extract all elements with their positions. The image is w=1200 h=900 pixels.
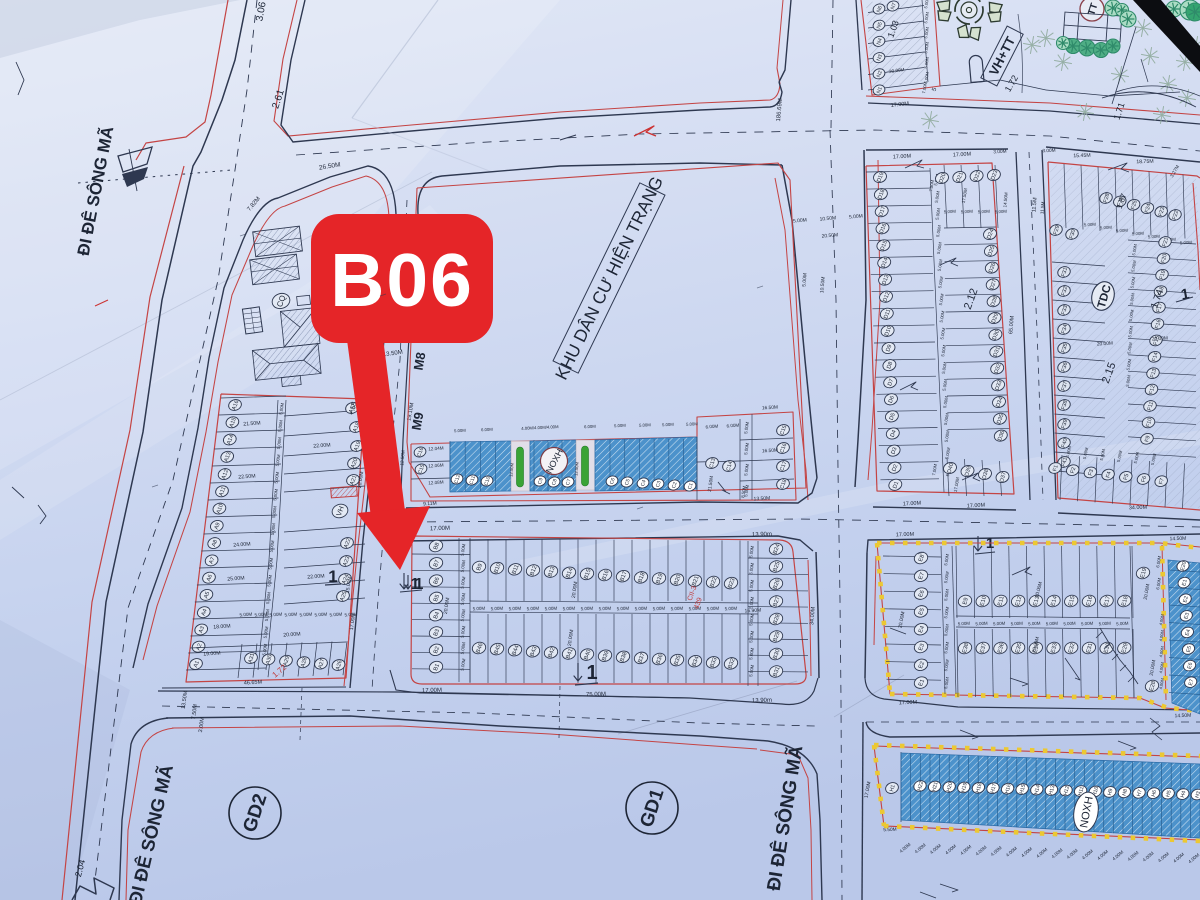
svg-text:5.00M: 5.00M: [993, 621, 1006, 627]
svg-text:34.00M: 34.00M: [1129, 505, 1148, 512]
svg-text:5.00M: 5.00M: [1028, 621, 1041, 627]
svg-text:6.00M: 6.00M: [705, 424, 718, 430]
svg-text:5.00M: 5.00M: [849, 213, 863, 220]
svg-text:5.00M: 5.00M: [1132, 231, 1145, 237]
svg-text:5.00M: 5.00M: [635, 606, 648, 612]
svg-text:5.00M: 5.00M: [793, 217, 807, 224]
svg-text:6.00M: 6.00M: [726, 423, 739, 429]
svg-text:5.00M: 5.00M: [473, 606, 486, 612]
svg-text:46.65M: 46.65M: [244, 680, 263, 687]
svg-text:5.00M: 5.00M: [801, 273, 808, 287]
svg-text:5.00M: 5.00M: [314, 612, 327, 618]
svg-text:18.75M: 18.75M: [1136, 159, 1154, 166]
svg-text:5.00M: 5.00M: [581, 606, 594, 612]
svg-text:17.00M: 17.00M: [896, 532, 915, 539]
svg-text:5.00M: 5.00M: [299, 612, 312, 618]
svg-text:5.00M: 5.00M: [1148, 234, 1161, 240]
svg-text:5.00M: 5.00M: [269, 612, 282, 618]
svg-text:22.00M: 22.00M: [313, 442, 331, 449]
svg-text:5.00M: 5.00M: [1084, 222, 1097, 228]
svg-text:5.00M: 5.00M: [563, 606, 576, 612]
svg-text:16.50M: 16.50M: [762, 448, 778, 455]
svg-text:5.00M: 5.00M: [995, 209, 1008, 215]
svg-text:5.00M: 5.00M: [1116, 621, 1129, 627]
svg-text:5.00M: 5.00M: [509, 606, 522, 612]
svg-text:3.00M: 3.00M: [993, 149, 1007, 156]
svg-text:5.00M: 5.00M: [944, 209, 957, 215]
svg-text:5.00M: 5.00M: [1081, 621, 1094, 627]
svg-text:5.00M: 5.00M: [725, 606, 738, 612]
svg-text:14.50M: 14.50M: [1170, 536, 1187, 543]
svg-text:1: 1: [586, 662, 597, 684]
svg-text:6.00M: 6.00M: [481, 427, 493, 433]
svg-text:5.00M: 5.00M: [545, 606, 558, 612]
svg-text:5.00M: 5.00M: [662, 422, 674, 428]
svg-text:5.00M: 5.00M: [1046, 621, 1059, 627]
svg-text:5.00M: 5.00M: [671, 606, 684, 612]
svg-text:17.00M: 17.00M: [967, 503, 986, 510]
svg-text:5.00M: 5.00M: [1180, 240, 1193, 246]
svg-text:5.00M: 5.00M: [1063, 621, 1076, 627]
svg-text:17.00M: 17.00M: [899, 700, 918, 707]
svg-text:5.00M: 5.00M: [329, 612, 342, 618]
svg-text:75.00M: 75.00M: [586, 692, 606, 699]
svg-text:21.50M: 21.50M: [243, 420, 261, 427]
svg-text:B06: B06: [330, 238, 474, 322]
svg-text:13.90m: 13.90m: [752, 532, 772, 539]
svg-text:14.50M: 14.50M: [1175, 713, 1192, 720]
svg-text:5.00M: 5.00M: [254, 612, 267, 618]
svg-text:5.00M: 5.00M: [1098, 621, 1111, 627]
svg-text:17.00M: 17.00M: [430, 526, 450, 533]
svg-text:18.00M: 18.00M: [213, 623, 231, 630]
svg-text:5.00M: 5.00M: [284, 612, 297, 618]
svg-text:5.00M: 5.00M: [1100, 225, 1113, 231]
svg-text:5.00M: 5.00M: [344, 612, 357, 618]
svg-text:25.00M: 25.00M: [227, 575, 245, 582]
svg-text:5.00M: 5.00M: [491, 606, 504, 612]
svg-text:16.90M: 16.90M: [744, 608, 761, 615]
svg-text:5.00M: 5.00M: [639, 422, 651, 428]
svg-text:5.00M: 5.00M: [707, 606, 720, 612]
svg-text:5.00M: 5.00M: [978, 209, 991, 215]
svg-text:5.00M: 5.00M: [527, 606, 540, 612]
svg-text:M8: M8: [411, 351, 429, 371]
svg-text:3.00M: 3.00M: [1042, 148, 1056, 154]
svg-text:13.50M: 13.50M: [753, 496, 770, 503]
svg-text:H3: H3: [1194, 791, 1200, 799]
svg-text:16.50M: 16.50M: [762, 405, 778, 412]
svg-text:24.00M: 24.00M: [233, 541, 251, 548]
svg-text:22.00M: 22.00M: [307, 573, 325, 580]
svg-text:5.00M: 5.00M: [975, 621, 988, 627]
svg-text:5.00M: 5.00M: [686, 421, 698, 427]
svg-text:19.00M: 19.00M: [203, 650, 221, 657]
svg-text:15.45M: 15.45M: [1073, 153, 1091, 160]
svg-text:5.50M: 5.50M: [883, 827, 897, 833]
svg-text:5.00M: 5.00M: [653, 606, 666, 612]
svg-text:5.00M: 5.00M: [454, 428, 466, 434]
svg-text:13.90m: 13.90m: [752, 698, 772, 705]
svg-text:5.00M: 5.00M: [1010, 621, 1023, 627]
svg-text:5.00M: 5.00M: [958, 621, 971, 627]
svg-text:6.00M: 6.00M: [584, 424, 596, 430]
svg-text:17.00M: 17.00M: [422, 688, 442, 695]
svg-text:5.00M: 5.00M: [961, 209, 974, 215]
svg-text:5.00M: 5.00M: [239, 612, 252, 618]
svg-text:20.00M: 20.00M: [1097, 340, 1113, 347]
svg-text:22.50M: 22.50M: [238, 473, 256, 480]
svg-text:17.00M: 17.00M: [893, 154, 912, 161]
svg-text:5.00M: 5.00M: [617, 606, 630, 612]
svg-text:20.00M: 20.00M: [1152, 335, 1168, 342]
svg-text:5.00M: 5.00M: [599, 606, 612, 612]
svg-text:9.11M: 9.11M: [423, 501, 437, 508]
svg-text:5.00M: 5.00M: [614, 423, 626, 429]
svg-text:17.00M: 17.00M: [953, 152, 972, 159]
svg-text:1: 1: [328, 567, 337, 586]
svg-text:17.00M: 17.00M: [903, 501, 922, 508]
svg-text:20.00M: 20.00M: [283, 631, 301, 638]
svg-text:5.00M: 5.00M: [1116, 228, 1129, 234]
